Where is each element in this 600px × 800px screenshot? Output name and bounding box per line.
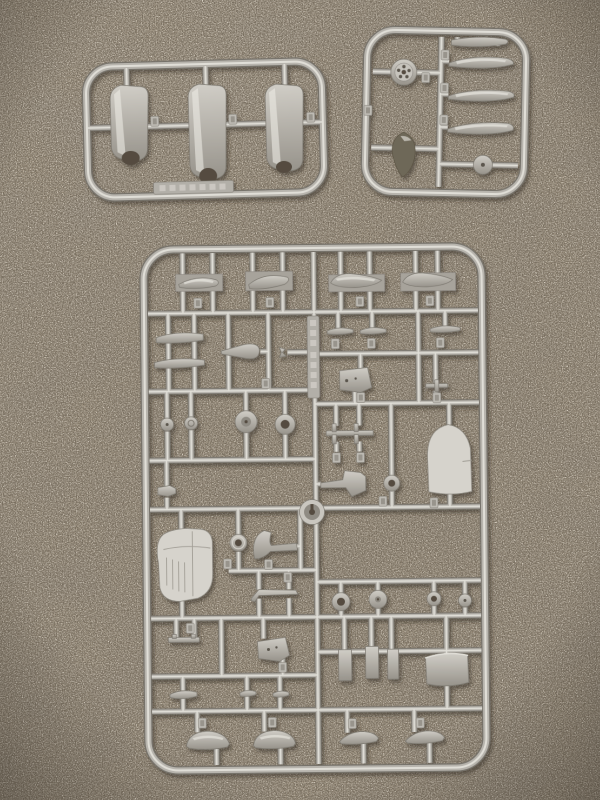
part-cowling-half-1 xyxy=(110,84,150,165)
part-radiator-block-3 xyxy=(387,649,398,679)
part-hub-keyhole-wheel xyxy=(299,499,324,524)
part-bulkhead-plate-lower xyxy=(257,637,289,661)
part-engine-cowling xyxy=(157,528,213,602)
part-tank-half-2 xyxy=(246,271,293,290)
part-propeller-hub xyxy=(391,59,418,86)
part-wheel-ring xyxy=(275,414,295,434)
part-wheel-disc-2 xyxy=(369,590,387,608)
part-radiator-block-2 xyxy=(365,646,378,678)
part-ring-small xyxy=(384,475,400,491)
part-cowling-half-2 xyxy=(188,83,229,184)
part-wheel-disc-3 xyxy=(458,594,471,607)
part-wheel-ring-2 xyxy=(332,593,350,611)
part-tank-half-3 xyxy=(329,273,385,292)
sprue-c-label-plate xyxy=(307,316,320,398)
part-cowl-panel xyxy=(426,653,469,686)
part-tank-half-4 xyxy=(401,273,456,292)
sprue-a-label-plate xyxy=(153,180,233,194)
part-radiator-block-1 xyxy=(338,650,351,681)
part-wheel-disc xyxy=(473,155,492,174)
part-wheel-small-2 xyxy=(185,417,198,430)
photo-of-model-kit-sprues xyxy=(0,0,600,800)
part-bulkhead-plate-upper xyxy=(340,367,372,392)
part-ring-hub xyxy=(230,534,247,551)
part-wheel-ring-3 xyxy=(427,592,441,606)
part-tail-fin xyxy=(427,424,472,494)
part-wheel-small-1 xyxy=(161,418,174,431)
part-tank-half-1 xyxy=(176,274,223,291)
sprue-photo-canvas xyxy=(0,0,600,800)
part-wheel-large xyxy=(235,411,257,433)
embossed-vertical-text-marks xyxy=(310,320,317,388)
part-cowling-half-3 xyxy=(265,83,305,173)
